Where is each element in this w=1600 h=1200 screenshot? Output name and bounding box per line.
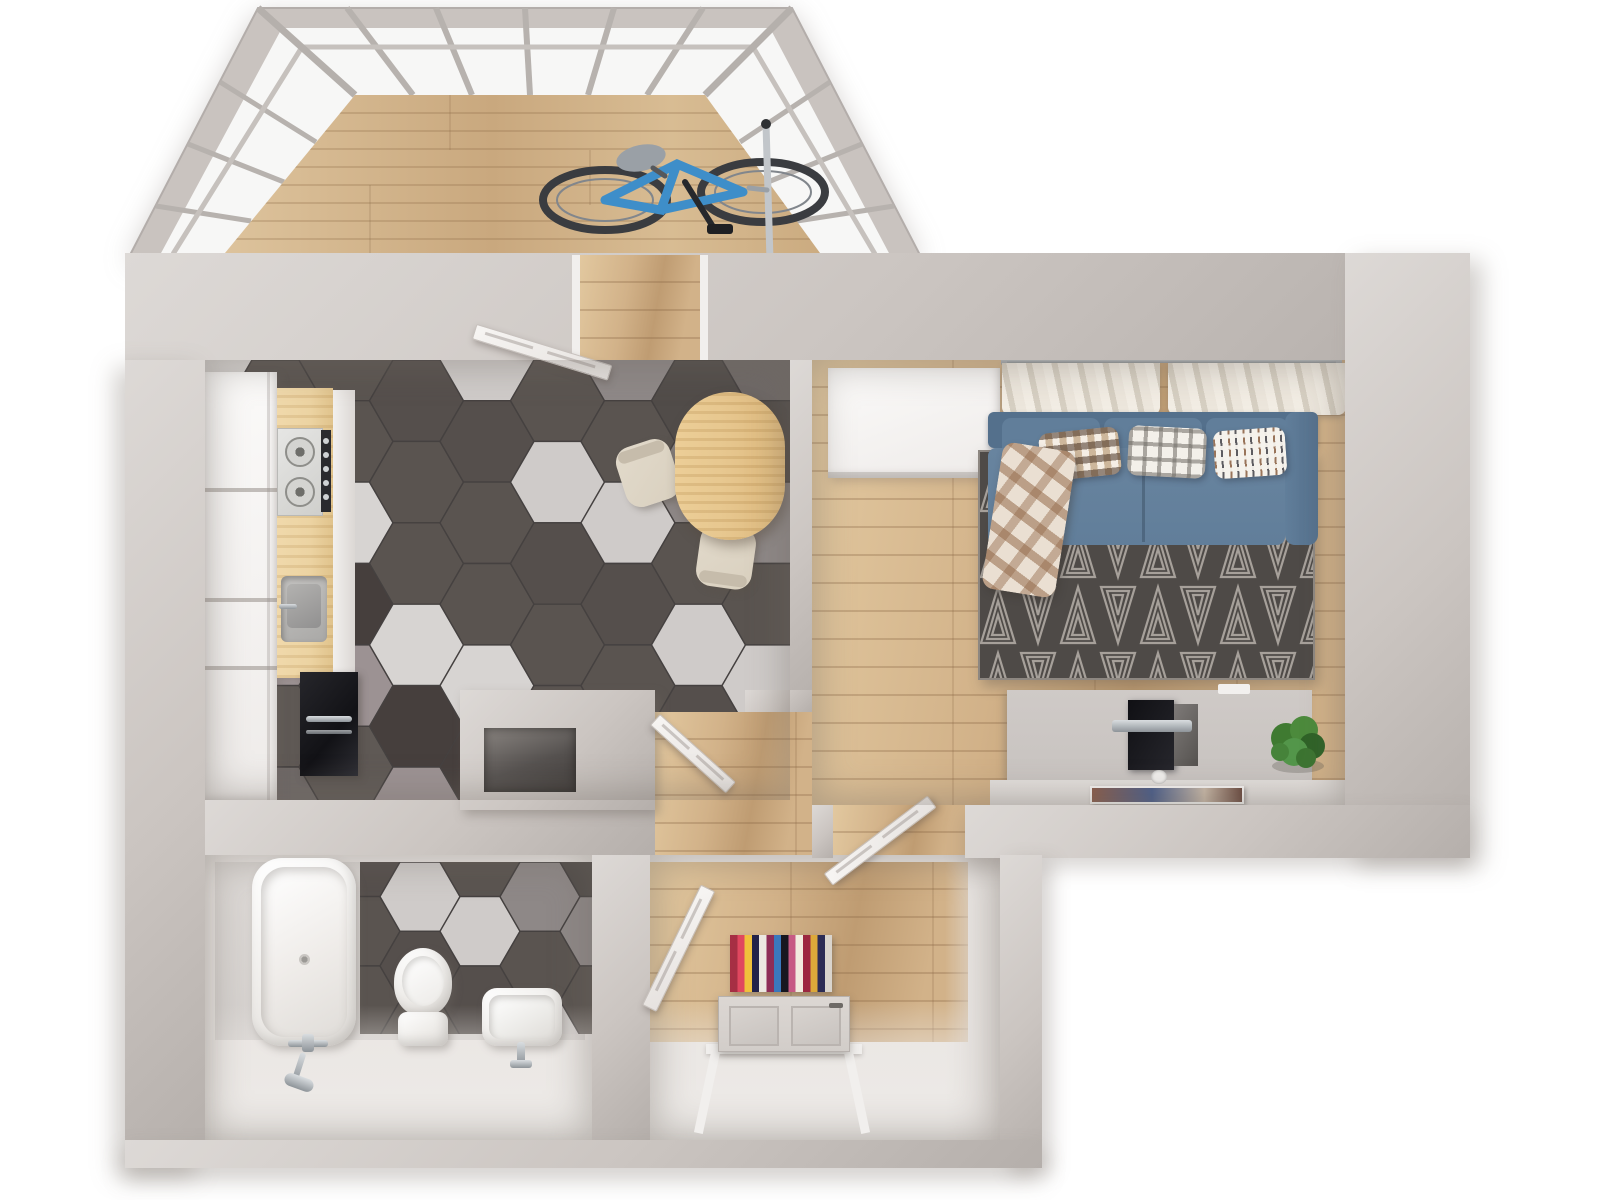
toilet-lid	[394, 948, 452, 1016]
kitchen-tall-cabinets	[205, 372, 277, 802]
wall-bottom	[125, 1140, 1042, 1168]
oven	[300, 672, 358, 776]
wash-basin	[482, 988, 562, 1046]
balcony-door-jamb	[700, 255, 708, 360]
balcony-door-threshold	[580, 255, 700, 360]
wall-kitchen-door-stub	[745, 690, 812, 712]
bathtub	[252, 858, 356, 1046]
magazine	[1090, 786, 1244, 804]
wall-bath-hall-divider	[592, 855, 650, 1140]
apartment-floorplan	[0, 0, 1600, 1200]
front-door	[718, 996, 850, 1052]
pillow-striped	[1212, 427, 1287, 480]
dining-table	[675, 392, 785, 540]
desk-accessory	[1218, 684, 1250, 694]
hob-control-strip	[321, 430, 331, 512]
wall-living-bottom-left	[812, 805, 833, 858]
bathtub-drain	[299, 954, 310, 965]
tv-side	[1174, 704, 1198, 766]
balcony-door-jamb	[572, 255, 580, 360]
wall-kitchen-living	[790, 360, 812, 712]
wall-top	[125, 253, 1470, 360]
pillow-plaid	[1127, 425, 1208, 479]
wall-left	[125, 360, 205, 1168]
bath-mixer-body	[302, 1034, 314, 1052]
hallway-striped-rug	[730, 935, 832, 992]
ventilation-shaft-duct	[484, 728, 576, 792]
wardrobe	[828, 368, 1000, 478]
balcony	[120, 0, 920, 260]
gas-hob	[277, 428, 323, 516]
plant	[1262, 708, 1332, 776]
wall-hall-right	[1000, 855, 1042, 1168]
kitchen-sink	[281, 576, 327, 642]
curtain-right	[1168, 363, 1346, 415]
basin-faucet-handle	[510, 1060, 532, 1068]
sink-faucet	[279, 604, 297, 609]
tv-base	[1151, 770, 1167, 784]
curtain-left	[1002, 363, 1160, 415]
ventilation-shaft	[460, 690, 655, 810]
tv-bracket	[1112, 720, 1192, 732]
toilet-cistern	[398, 1012, 448, 1046]
wall-living-bottom	[965, 805, 1470, 858]
hallway-wall-fade-right	[945, 855, 1000, 1140]
kitchen-side-panel	[333, 390, 355, 688]
front-door-handle	[829, 1003, 843, 1008]
wall-right	[1345, 253, 1470, 858]
sofa-armrest-right	[1285, 412, 1318, 545]
tv	[1128, 700, 1174, 770]
